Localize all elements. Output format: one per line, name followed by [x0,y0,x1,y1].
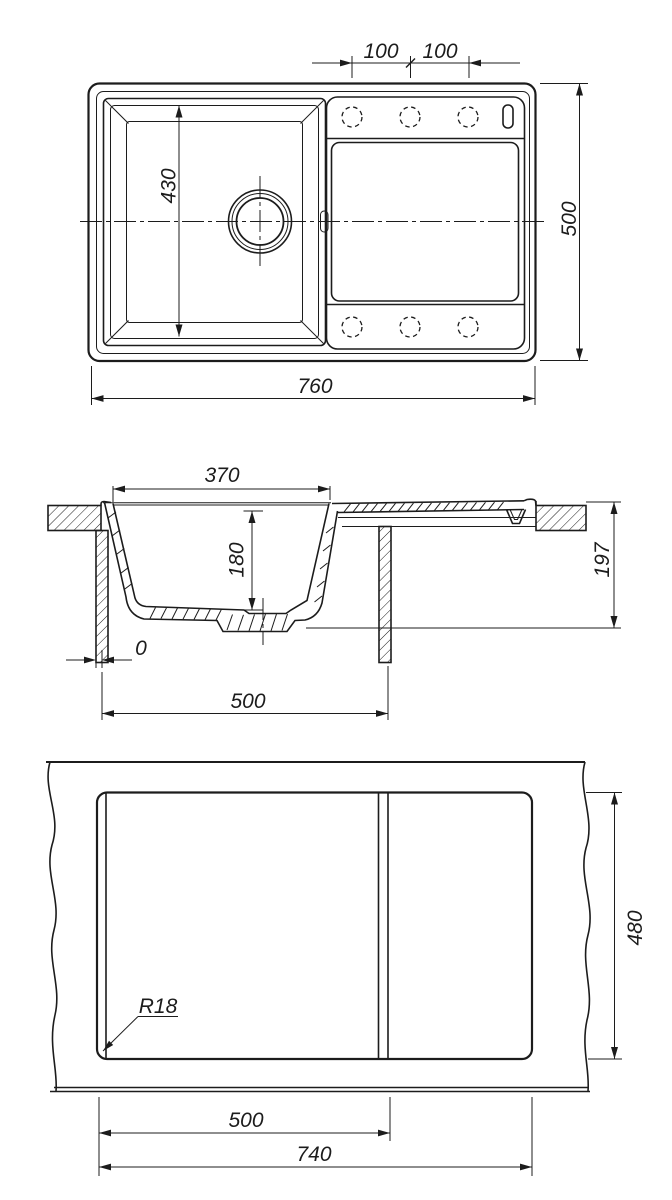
dim-text-cutout-width: 480 [624,910,647,945]
faucet-slot [503,105,513,128]
dim-cabinet-width: 500 [102,666,388,720]
dim-text-corner-radius: R18 [139,995,178,1018]
drainboard-plan [327,97,525,349]
faucet-knockout-hole [458,107,478,127]
dim-hole-pitch: 100 100 [312,40,520,78]
dim-text-hole-pitch-left: 100 [363,40,398,63]
cutout-outline [97,793,532,1060]
sink-rim-inner-line [97,92,530,354]
sink-technical-drawing: 100 100 430 500 760 [0,0,672,1200]
dim-text-hole-pitch-right: 100 [422,40,457,63]
bowl-outer-wall [105,503,338,632]
cabinet-wall-right [379,527,391,663]
technical-drawing-sheet: 100 100 430 500 760 [0,0,672,1200]
dim-cutout-length: 740 [99,1097,532,1176]
bowl-section-hatch [108,512,334,631]
dim-overall-width: 500 [540,84,588,361]
dim-text-overall-width: 500 [558,201,581,236]
cutout-view: R18 480 500 740 [46,762,647,1176]
faucet-knockout-hole [342,317,362,337]
dim-text-divider-offset: 500 [228,1109,263,1132]
drainboard-section [332,499,536,526]
faucet-knockout-hole [342,107,362,127]
dim-text-cabinet-width: 500 [230,690,265,713]
faucet-knockout-hole [400,107,420,127]
dim-cutout-width: 480 [586,793,647,1060]
plan-view: 100 100 430 500 760 [80,40,588,405]
dim-text-overall-length: 760 [297,375,332,398]
faucet-knockout-hole [458,317,478,337]
panel-break-line-right [583,762,590,1091]
dim-text-bowl-length: 430 [158,168,181,203]
sink-outer-outline [89,84,536,362]
dim-bowl-depth: 180 [226,511,264,610]
dim-text-bowl-depth: 180 [226,542,249,577]
sink-section-profile [101,499,536,645]
dim-bowl-width: 370 [113,464,330,502]
faucet-knockout-hole [400,317,420,337]
panel-break-line-left [48,762,57,1091]
overflow-funnel [507,510,526,524]
dim-text-front-gap: 0 [135,637,147,660]
radius-callout: R18 [103,995,178,1051]
dim-text-overall-height: 197 [591,541,614,577]
dim-text-bowl-width: 370 [204,464,239,487]
dim-text-cutout-length: 740 [296,1143,331,1166]
countertop-left-section [48,506,101,531]
section-view: 370 180 197 0 [48,464,621,720]
bowl-inner-wall [113,504,329,614]
dim-overall-length: 760 [92,366,536,405]
dim-divider-offset: 500 [99,1097,390,1176]
countertop-right-section [536,506,586,531]
cabinet-wall-left [96,531,108,663]
